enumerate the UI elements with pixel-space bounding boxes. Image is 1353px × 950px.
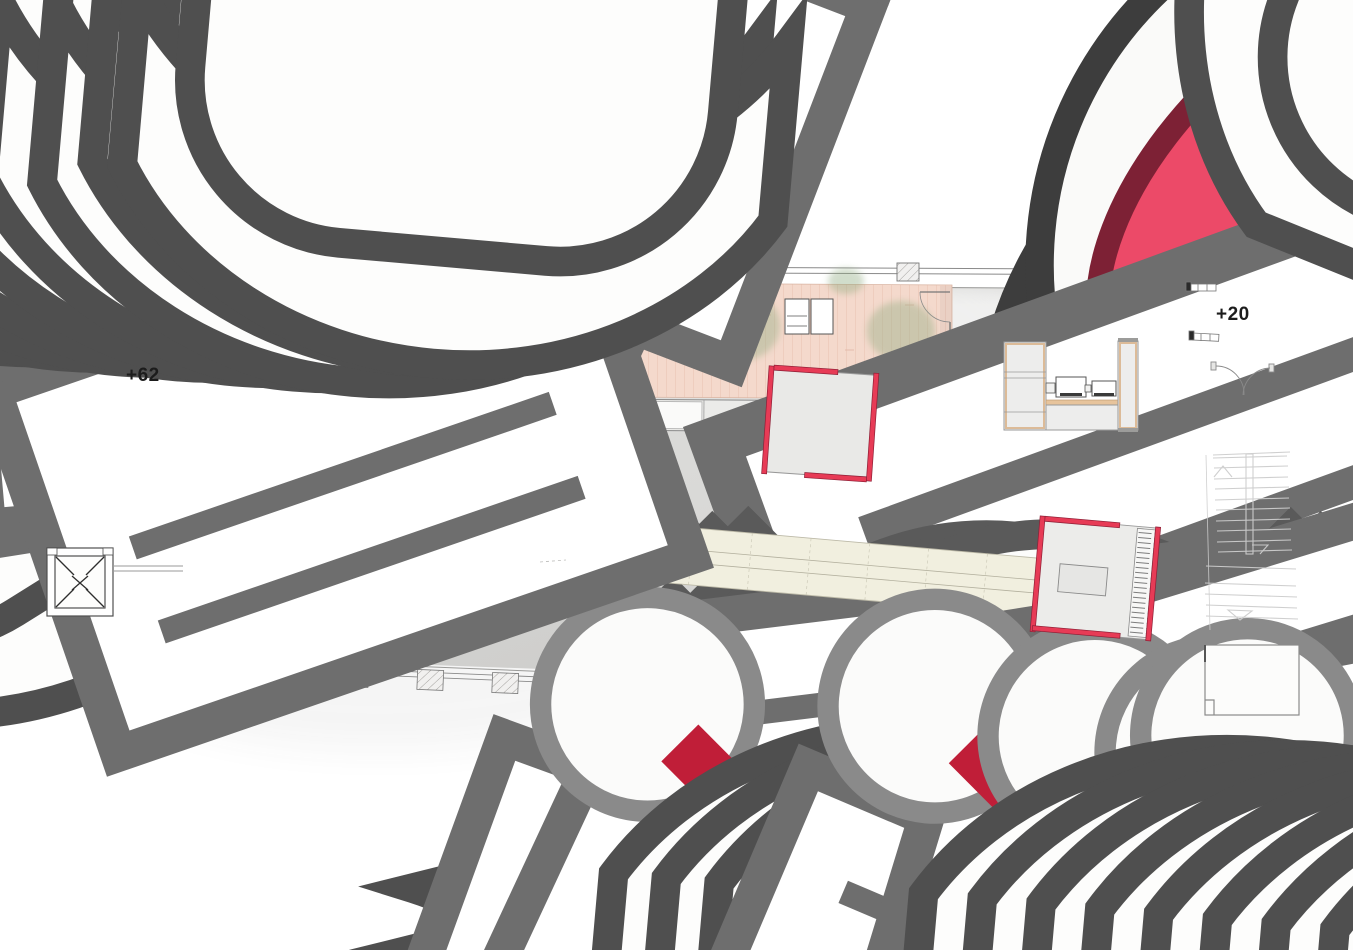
level-label-stair: +20 (1216, 304, 1250, 325)
floor-plan: +62 +20 (0, 0, 1353, 950)
level-label-main: +62 (126, 365, 160, 386)
floor-plan-drawing: +62 +20 (0, 0, 1353, 950)
lounge-table (785, 299, 833, 334)
stair-bottom-room (1205, 645, 1299, 715)
meeting-table (1058, 564, 1108, 596)
